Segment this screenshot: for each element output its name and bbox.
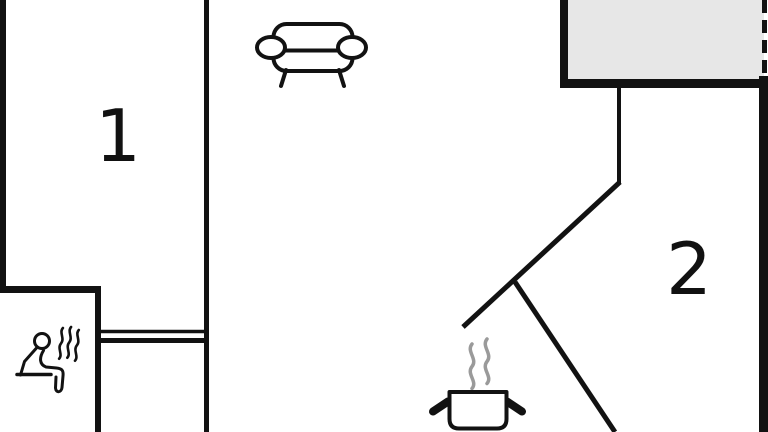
cooking-pot-icon xyxy=(433,339,522,429)
balcony-bottom-wall xyxy=(560,79,768,88)
balcony-area xyxy=(560,0,768,88)
room-1-label: 1 xyxy=(95,100,141,172)
floor-plan: 1 2 xyxy=(0,0,768,432)
sofa-icon xyxy=(257,24,366,86)
kitchen-diagonal-wall-2 xyxy=(515,282,615,432)
floor-plan-drawing xyxy=(0,0,768,432)
left-outer-wall xyxy=(0,0,6,293)
room-2-label: 2 xyxy=(666,233,712,305)
balcony-left-wall xyxy=(560,0,568,88)
balcony-fill xyxy=(566,0,764,81)
sauna-icon xyxy=(17,326,80,392)
kitchen-diagonal-wall-1 xyxy=(463,182,620,327)
right-outer-wall xyxy=(759,76,768,432)
